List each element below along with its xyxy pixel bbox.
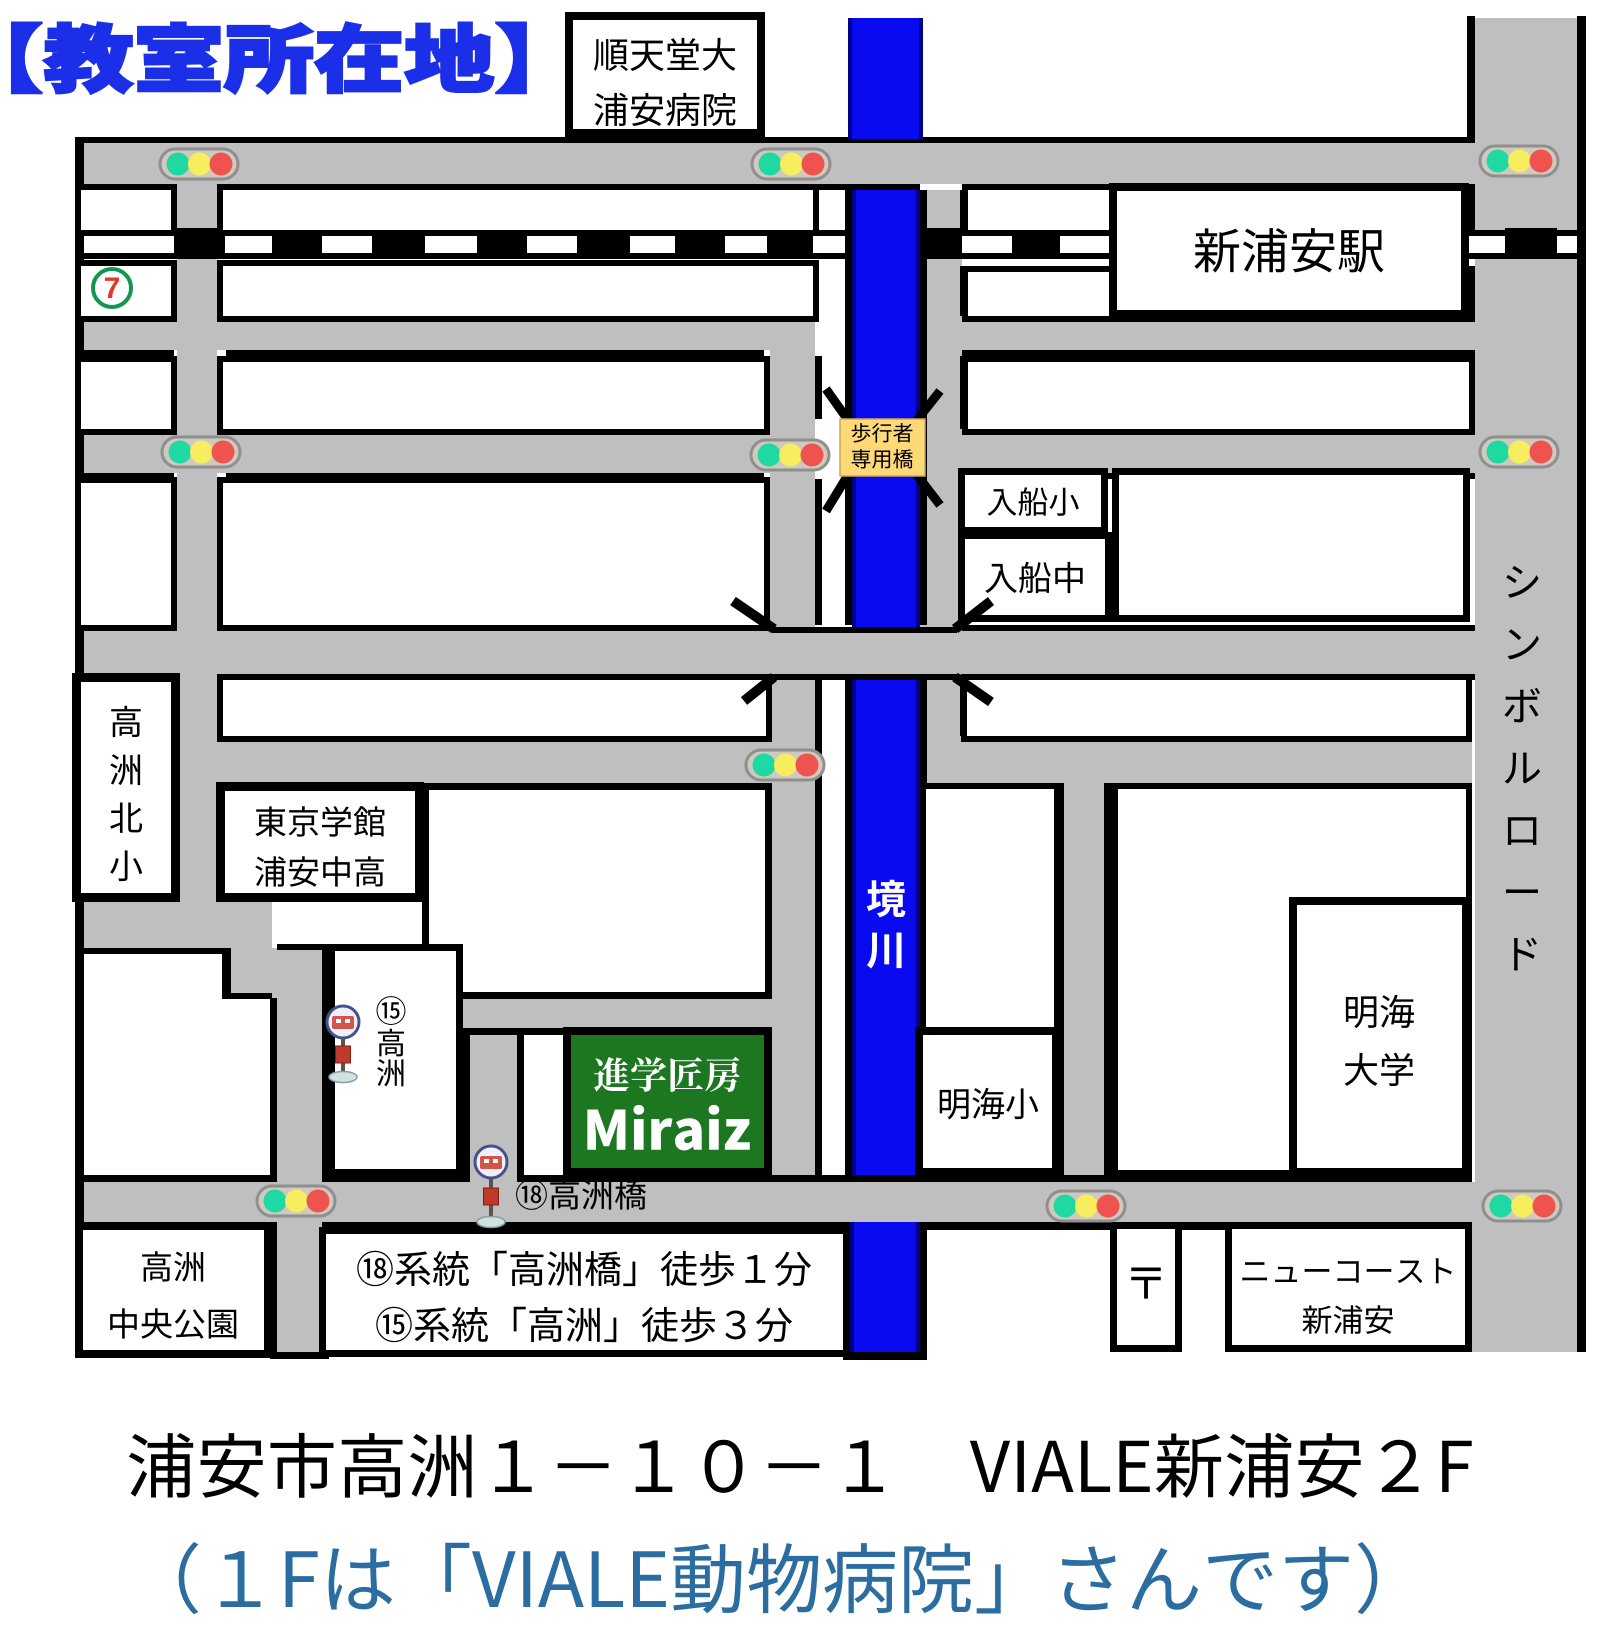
svg-text:7: 7 xyxy=(104,272,121,305)
